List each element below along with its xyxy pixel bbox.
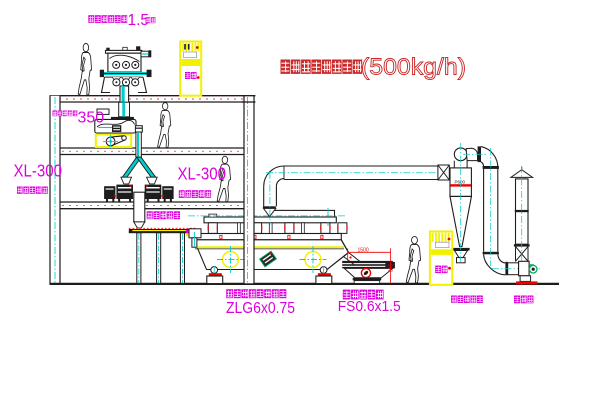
svg-text:P600: P600 [455,180,466,185]
svg-text:XL-300: XL-300 [14,161,63,181]
svg-text:FS0.6x1.5: FS0.6x1.5 [338,298,401,315]
svg-text:ZLG6x0.75: ZLG6x0.75 [226,300,295,317]
svg-text:1500: 1500 [358,247,369,253]
svg-text:(500kg/h): (500kg/h) [361,54,466,80]
svg-text:345: 345 [388,263,394,272]
svg-text:350: 350 [78,110,105,127]
svg-text:XL-300: XL-300 [178,164,227,184]
